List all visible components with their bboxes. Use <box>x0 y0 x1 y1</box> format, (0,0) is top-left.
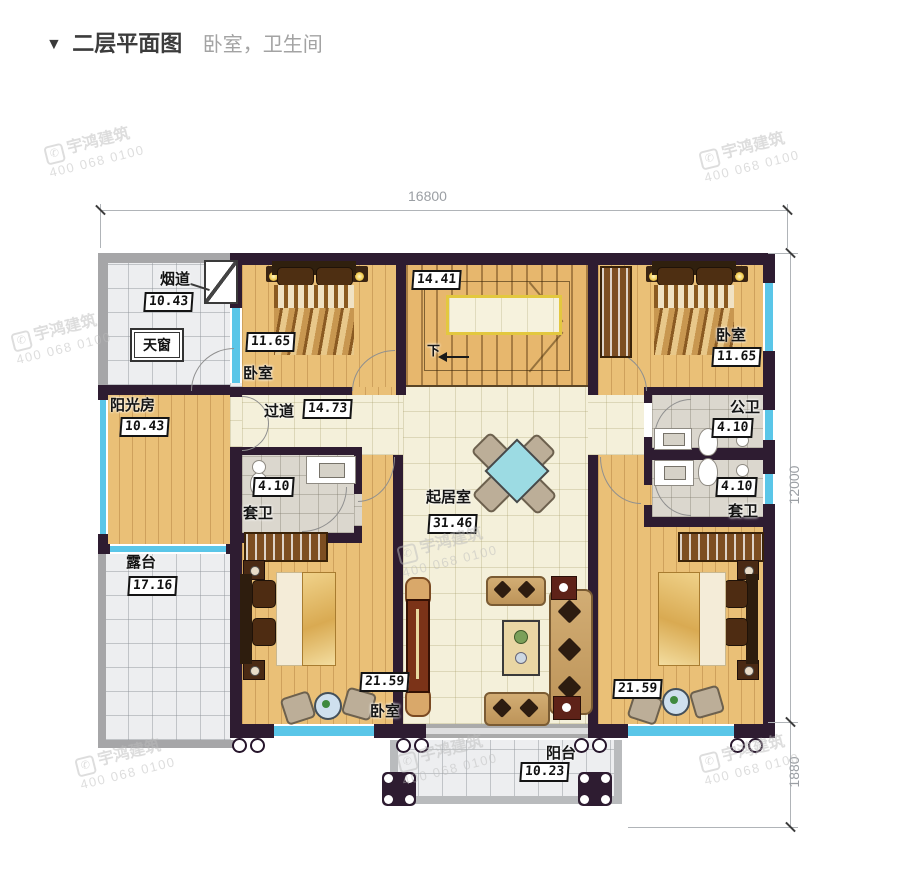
area-label-bedroomTL: 11.65 <box>245 332 296 352</box>
area-label-living: 31.46 <box>427 514 478 534</box>
sink-icon <box>654 460 694 486</box>
area-label-bedroomBL: 21.59 <box>359 672 410 692</box>
triangle-marker: ▼ <box>46 36 62 53</box>
bed-pillow <box>252 618 276 646</box>
skylight-box: 天窗 <box>130 328 184 362</box>
phone-icon <box>10 330 33 353</box>
wall-flue-left <box>98 253 108 395</box>
balcony-column <box>578 772 612 806</box>
bed-pillow <box>316 267 353 286</box>
room-label-bedroomTL: 卧室 <box>243 362 273 383</box>
room-label-living: 起居室 <box>426 486 471 507</box>
sofa-loveseat <box>486 576 546 606</box>
dimension-ext <box>628 827 798 828</box>
bed-pillow <box>696 267 733 286</box>
column-base <box>250 738 265 753</box>
watermark-brand: 宇鸿建筑 <box>65 125 131 157</box>
wardrobe <box>600 266 632 358</box>
window-sunroom-left <box>98 400 108 534</box>
window-bedroomTR <box>763 283 775 351</box>
coffee-table <box>502 620 540 676</box>
balcony-column <box>382 772 416 806</box>
window-bedroomBL <box>274 724 374 738</box>
area-label-balcony: 10.23 <box>519 762 570 782</box>
bed-pillow <box>252 580 276 608</box>
door-gap-sunroom-corridor <box>230 397 242 447</box>
wall-corridor-top-b <box>644 387 775 395</box>
bed-sheet <box>276 572 304 666</box>
tea-table <box>662 688 690 716</box>
wardrobe <box>678 532 764 562</box>
drain-icon <box>736 464 749 477</box>
wall-balcony-right <box>614 740 622 802</box>
bed-pillow <box>724 618 748 646</box>
sofa-loveseat <box>484 692 550 726</box>
side-table <box>553 696 581 720</box>
side-table <box>551 576 577 600</box>
wall-bedroomTL-stairs <box>396 253 406 395</box>
dimension-height-balcony: 1880 <box>786 742 802 802</box>
toilet-tank-icon <box>252 460 266 474</box>
sink-icon <box>654 428 692 450</box>
phone-icon <box>43 143 66 166</box>
skylight-label: 天窗 <box>134 332 180 358</box>
watermark-phone: 400 068 0100 <box>79 754 177 792</box>
area-label-ensuiteR: 4.10 <box>715 477 758 497</box>
wall-terrace-left <box>98 554 106 748</box>
watermark: 宇鸿建筑400 068 0100 <box>41 117 146 180</box>
bed-sheet <box>698 572 726 666</box>
area-label-ensuiteL: 4.10 <box>252 477 295 497</box>
balcony-sliding-door <box>426 724 588 738</box>
watermark-brand: 宇鸿建筑 <box>32 312 98 344</box>
tv-cabinet <box>406 599 430 693</box>
area-label-sunroom: 10.43 <box>119 417 170 437</box>
watermark-phone: 400 068 0100 <box>48 142 146 180</box>
toilet-icon <box>698 458 718 486</box>
dimension-line-top <box>100 210 788 211</box>
page-subtitle: 卧室，卫生间 <box>203 34 323 56</box>
wall-corridor-top-a <box>230 387 352 395</box>
flue-icon <box>204 260 238 304</box>
phone-icon <box>74 755 97 778</box>
floor-plan-page: ▼ 二层平面图 卧室，卫生间 <box>0 0 910 890</box>
wall-stairs-bedroomTR <box>588 253 598 395</box>
column-base <box>574 738 589 753</box>
stair-direction-line <box>447 356 469 358</box>
tea-table <box>314 692 342 720</box>
column-base <box>592 738 607 753</box>
window-public-bath <box>763 410 775 440</box>
room-label-corridor: 过道 <box>264 400 294 421</box>
wall-terrace-bottom <box>98 740 238 748</box>
column-base <box>730 738 745 753</box>
column-base <box>396 738 411 753</box>
sink-icon <box>306 456 356 484</box>
phone-icon <box>698 148 721 171</box>
column-base <box>414 738 429 753</box>
room-label-balcony: 阳台 <box>546 742 576 763</box>
wall-bath-left-b <box>644 437 652 485</box>
room-label-sunroom: 阳光房 <box>110 394 155 415</box>
stair-landing <box>446 295 562 335</box>
room-label-ensuiteR: 套卫 <box>728 500 758 521</box>
area-label-flue: 10.43 <box>143 292 194 312</box>
column-base <box>748 738 763 753</box>
watermark-phone: 400 068 0100 <box>703 147 801 185</box>
area-label-bedroomBR: 21.59 <box>612 679 663 699</box>
room-label-public-bath: 公卫 <box>730 396 760 417</box>
area-label-corridor: 14.73 <box>302 399 353 419</box>
wardrobe <box>244 532 328 562</box>
phone-icon <box>698 751 721 774</box>
bed-pillow <box>657 267 694 286</box>
dimension-line-right <box>790 253 791 827</box>
window-ensuiteR <box>763 474 775 504</box>
area-label-public-bath: 4.10 <box>711 418 754 438</box>
bed-sheet <box>654 285 734 308</box>
bed-sheet <box>274 285 354 308</box>
page-header: ▼ 二层平面图 卧室，卫生间 <box>46 26 323 58</box>
area-label-terrace: 17.16 <box>127 576 178 596</box>
watermark-brand: 宇鸿建筑 <box>720 130 786 162</box>
column-base <box>232 738 247 753</box>
dimension-height-main: 12000 <box>786 455 802 515</box>
stair-edge-line <box>406 385 588 387</box>
room-label-terrace: 露台 <box>126 551 156 572</box>
wall-bath-left-a <box>644 395 652 403</box>
room-label-bedroomBL: 卧室 <box>370 700 400 721</box>
dimension-width-total: 16800 <box>408 188 447 204</box>
bed-pillow <box>277 267 314 286</box>
bed-headboard <box>240 574 252 664</box>
bed-pillow <box>724 580 748 608</box>
bed-blanket <box>302 572 336 666</box>
watermark: 宇鸿建筑400 068 0100 <box>696 122 801 185</box>
room-label-flue: 烟道 <box>160 268 190 289</box>
page-title: 二层平面图 <box>72 31 182 56</box>
wall-corridor-top-stub1 <box>396 387 406 395</box>
stairs-down-label: 下 <box>427 340 440 359</box>
bed-blanket <box>658 572 700 666</box>
area-label-bedroomTR: 11.65 <box>711 347 762 367</box>
room-label-ensuiteL: 套卫 <box>243 502 273 523</box>
wall-corridor-top-stub2 <box>588 387 598 395</box>
room-label-bedroomTR: 卧室 <box>716 324 746 345</box>
window-bedroomBR <box>628 724 734 738</box>
area-label-stairs: 14.41 <box>411 270 462 290</box>
